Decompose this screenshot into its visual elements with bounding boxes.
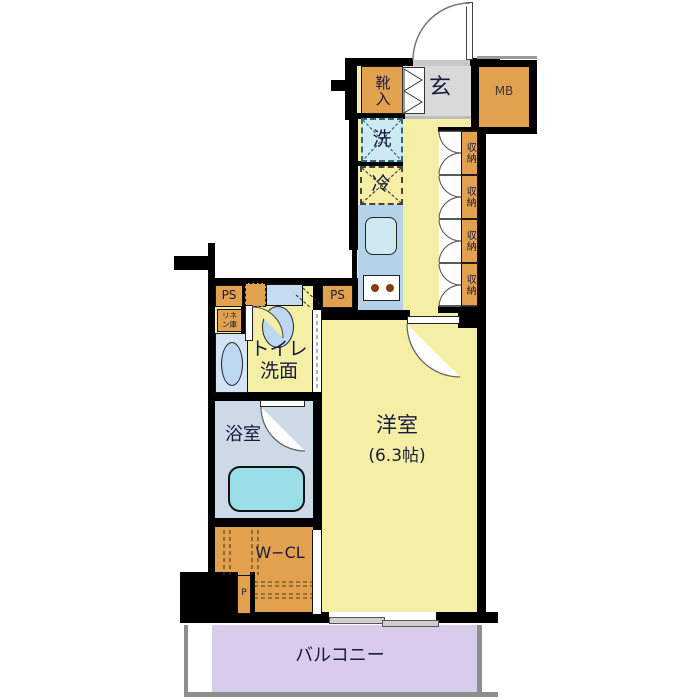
wall [477, 127, 486, 623]
western-room-door-panel [407, 316, 460, 324]
wall [174, 256, 209, 270]
outer-line [477, 56, 537, 59]
wall [313, 310, 410, 320]
balcony-railing-right [477, 625, 482, 693]
entry-threshold [413, 60, 470, 66]
wall [208, 518, 315, 527]
floorplan: 玄 靴入 MB 洗 冷 収納 収納 収納 収納 PS PS リネン庫 トイレ洗面… [0, 0, 700, 700]
kitchen-sink [365, 217, 397, 255]
wall [529, 60, 537, 134]
wall [436, 612, 498, 623]
toilet-sliding-door [312, 310, 322, 392]
linen-closet-label: リネン庫 [217, 310, 242, 331]
bathroom-door-panel [260, 400, 305, 407]
toilet-upper-cabinet [245, 283, 266, 307]
balcony-window [329, 617, 385, 624]
balcony-label: バルコニー [280, 642, 400, 670]
wcl-sliding-door [312, 530, 322, 614]
washer-label: 洗 [362, 126, 402, 154]
balcony-railing-bottom [184, 692, 498, 697]
wall [477, 127, 537, 134]
shoe-cabinet-label: 靴入 [366, 70, 398, 112]
washbasin-bowl [221, 342, 243, 386]
pipe-space-right-label: PS [322, 287, 353, 305]
pipe-space-left-label: PS [215, 287, 243, 305]
stove-burner [371, 284, 379, 292]
balcony-window [382, 620, 439, 627]
meter-box-label: MB [485, 82, 523, 102]
entry-step-line [405, 116, 471, 119]
storage-doors-area [439, 131, 461, 307]
wall [471, 62, 479, 128]
bathtub [228, 466, 305, 512]
wall [473, 60, 537, 67]
storage-label: 収納 [461, 221, 478, 261]
wall [349, 118, 358, 250]
western-room-size: (6.3帖) [345, 444, 449, 470]
storage-label: 収納 [461, 133, 478, 173]
wall [331, 80, 348, 91]
entrance-door-arc [413, 3, 470, 60]
toilet-washroom-label: トイレ洗面 [246, 330, 312, 392]
storage-label: 収納 [461, 177, 478, 217]
western-room-label: 洋室 [345, 410, 449, 440]
bathroom-label: 浴室 [214, 422, 272, 448]
entrance-door-panel [466, 2, 473, 60]
balcony-railing-left [184, 625, 188, 693]
fridge-label: 冷 [360, 172, 402, 198]
wall [208, 243, 215, 283]
wall [180, 572, 238, 623]
toilet-shelf [266, 284, 303, 306]
storage-label: 収納 [461, 265, 478, 305]
stove-burner [386, 284, 394, 292]
entrance-label: 玄 [420, 68, 460, 108]
pipe-shaft-label: P [237, 583, 251, 603]
walk-in-closet-label: W−CL [248, 540, 312, 566]
kitchen-stove [363, 275, 400, 301]
